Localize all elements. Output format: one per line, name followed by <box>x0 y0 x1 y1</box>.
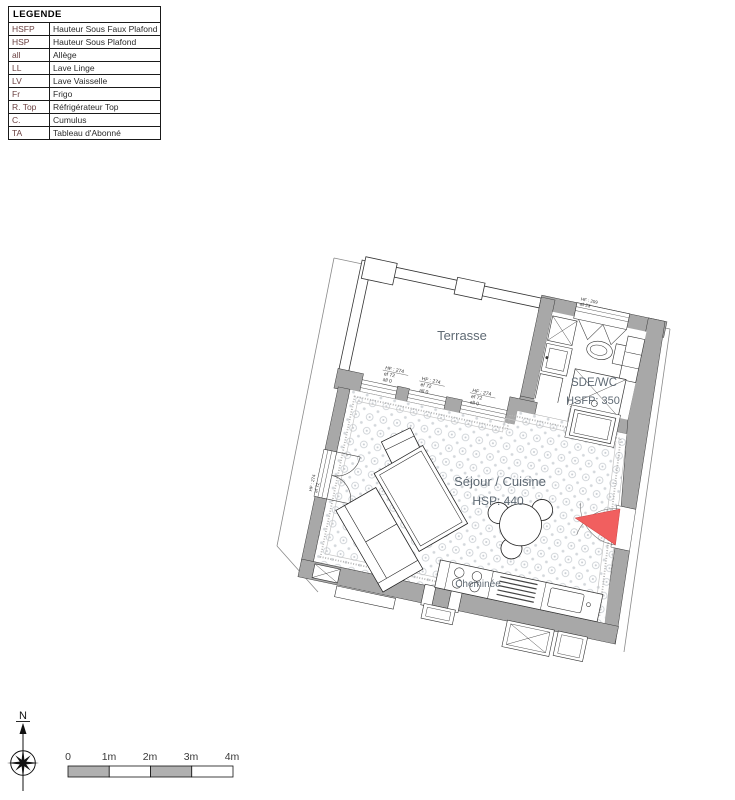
legend-title: LEGENDE <box>9 7 161 23</box>
sejour-ceiling-label: HSP: 440 <box>472 494 524 508</box>
scale-tick: 0 <box>65 751 71 763</box>
legend-row: HSPHauteur Sous Plafond <box>9 36 161 49</box>
chimney-label: Cheminée <box>455 579 501 590</box>
legend-row: HSFPHauteur Sous Faux Plafond <box>9 23 161 36</box>
legend-label: Lave Vaisselle <box>50 75 161 88</box>
legend-label: Réfrigérateur Top <box>50 101 161 114</box>
legend-label: Lave Linge <box>50 62 161 75</box>
duct-box <box>548 316 578 346</box>
legend-row: TATableau d'Abonné <box>9 127 161 140</box>
annotation-line: all 0 <box>382 377 392 385</box>
legend-row: C.Cumulus <box>9 114 161 127</box>
legend-abbr: HSP <box>9 36 50 49</box>
compass-rose-icon: N <box>7 710 39 791</box>
legend-abbr: LL <box>9 62 50 75</box>
legend-abbr: HSFP <box>9 23 50 36</box>
legend-label: Hauteur Sous Plafond <box>50 36 161 49</box>
legend-abbr: C. <box>9 114 50 127</box>
legend-label: Hauteur Sous Faux Plafond <box>50 23 161 36</box>
legend-abbr: R. Top <box>9 101 50 114</box>
terrasse-label: Terrasse <box>437 328 487 343</box>
sde-label: SDE/WC <box>571 377 617 389</box>
scale-tick: 4m <box>225 751 240 763</box>
terrasse-post <box>454 277 485 299</box>
scale-tick: 1m <box>102 751 117 763</box>
scale-bar: 0 1m 2m 3m 4m <box>65 751 239 777</box>
legend-label: Cumulus <box>50 114 161 127</box>
legend-table: LEGENDE HSFPHauteur Sous Faux Plafond HS… <box>8 6 161 140</box>
legend-label: Frigo <box>50 88 161 101</box>
scale-tick: 2m <box>143 751 158 763</box>
building-plan: HF : 209 all 23 <box>285 249 685 669</box>
legend-abbr: TA <box>9 127 50 140</box>
legend-row: allAllège <box>9 49 161 62</box>
legend-label: Allège <box>50 49 161 62</box>
legend-abbr: all <box>9 49 50 62</box>
legend-row: LVLave Vaisselle <box>9 75 161 88</box>
scale-tick: 3m <box>184 751 199 763</box>
washbasin <box>541 343 572 376</box>
legend-row: FrFrigo <box>9 88 161 101</box>
legend-row: R. TopRéfrigérateur Top <box>9 101 161 114</box>
sde-ceiling-label: HSFP: 350 <box>566 395 620 407</box>
sejour-label: Séjour / Cuisine <box>454 474 546 489</box>
legend-abbr: LV <box>9 75 50 88</box>
legend-label: Tableau d'Abonné <box>50 127 161 140</box>
legend-abbr: Fr <box>9 88 50 101</box>
legend-row: LLLave Linge <box>9 62 161 75</box>
north-label: N <box>19 710 27 722</box>
